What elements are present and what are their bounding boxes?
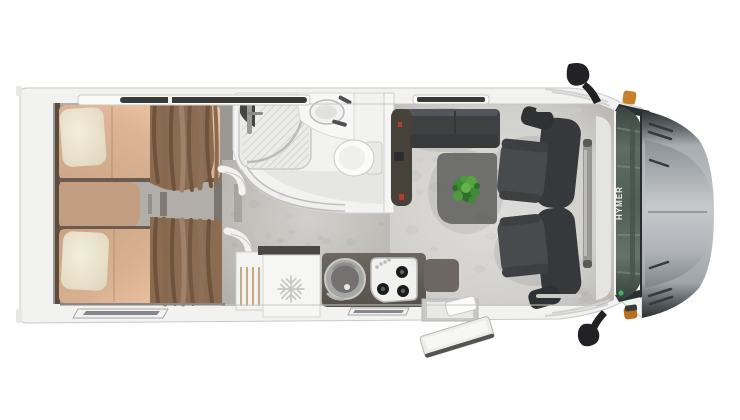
svg-text:HYMER: HYMER <box>615 186 624 220</box>
